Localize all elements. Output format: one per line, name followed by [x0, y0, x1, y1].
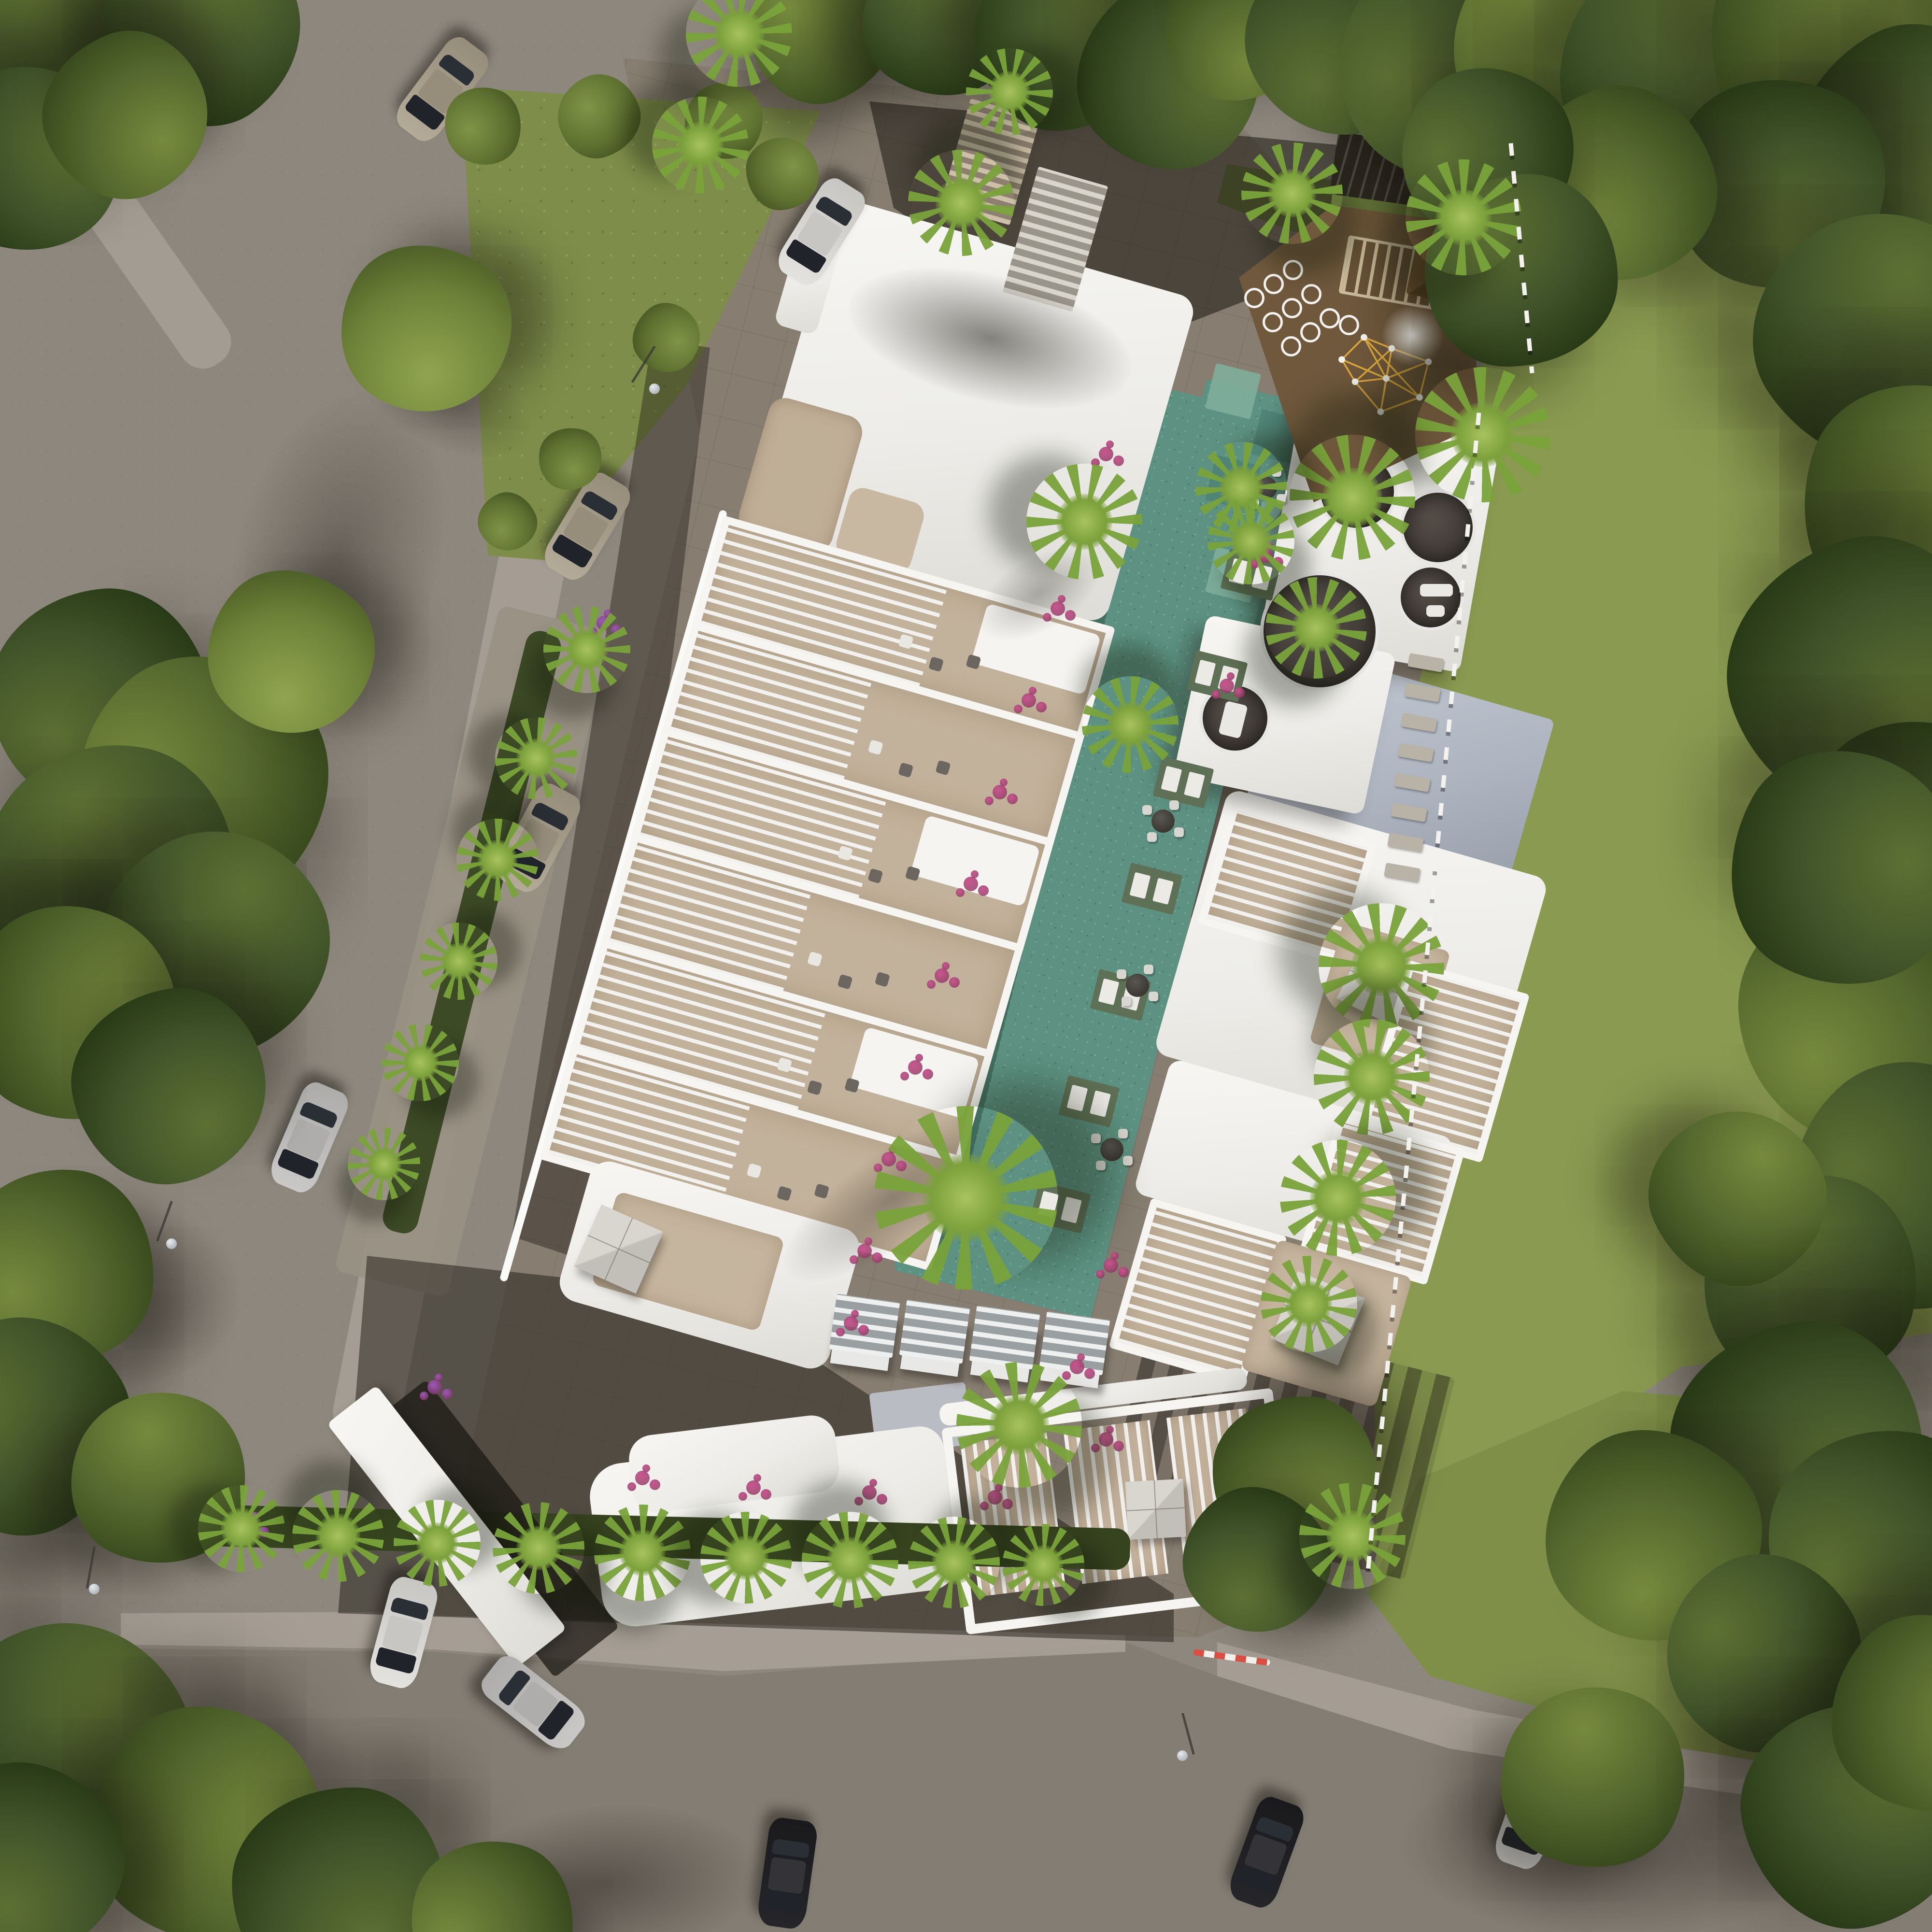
- outdoor-chair: [1091, 1134, 1101, 1143]
- pool-cabana: [969, 1305, 1040, 1369]
- canopy-circle-opening: [1397, 564, 1464, 631]
- outdoor-chair: [1149, 992, 1158, 1001]
- hopscotch-ring: [1283, 260, 1303, 280]
- outdoor-table: [1100, 1138, 1123, 1161]
- hopscotch-ring: [1282, 298, 1302, 318]
- hopscotch-ring: [1281, 336, 1301, 356]
- pool-cabana: [899, 1299, 970, 1364]
- outdoor-chair: [1169, 800, 1179, 810]
- outdoor-chair: [1096, 1161, 1106, 1170]
- outdoor-chair: [1122, 996, 1131, 1006]
- outdoor-table: [1126, 974, 1149, 997]
- hopscotch-ring: [1244, 288, 1264, 308]
- outdoor-chair: [1117, 969, 1126, 979]
- outdoor-chair: [1123, 1156, 1133, 1165]
- street-lamp: [1177, 1750, 1188, 1761]
- street-lamp: [649, 384, 660, 394]
- street-lamp: [89, 1584, 99, 1594]
- hopscotch-ring: [1320, 308, 1340, 328]
- street-lamp: [166, 1238, 177, 1249]
- outdoor-chair: [1118, 1129, 1128, 1138]
- hopscotch-ring: [1339, 315, 1359, 335]
- aerial-site-render: [0, 0, 1932, 1932]
- outdoor-table: [1151, 810, 1175, 833]
- hopscotch-ring: [1264, 274, 1284, 294]
- hopscotch-ring: [1263, 312, 1283, 332]
- outdoor-chair: [1174, 827, 1184, 837]
- bottom-umbrella: [1125, 1479, 1186, 1540]
- hopscotch-ring: [1300, 322, 1321, 342]
- hopscotch-ring: [1301, 284, 1321, 304]
- outdoor-chair: [1147, 832, 1157, 842]
- outdoor-chair: [1142, 805, 1152, 815]
- outdoor-chair: [1144, 965, 1153, 974]
